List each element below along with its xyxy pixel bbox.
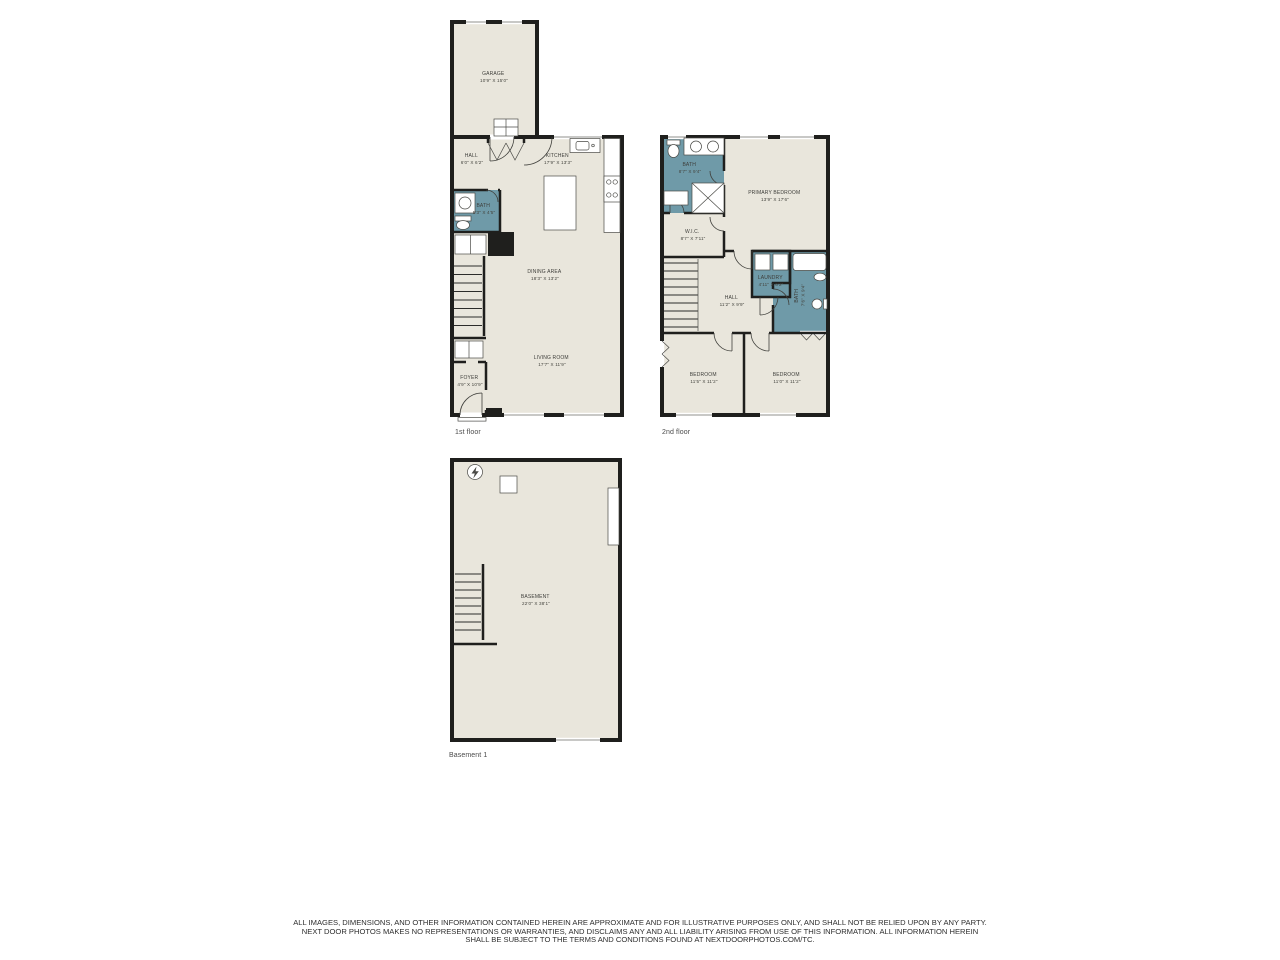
- disclaimer-line: SHALL BE SUBJECT TO THE TERMS AND CONDIT…: [0, 936, 1280, 945]
- second-floor-label: 2nd floor: [662, 429, 690, 436]
- electrical-panel-icon: [468, 465, 483, 480]
- egress-window: [608, 488, 619, 545]
- double-vanity-icon: [684, 138, 724, 155]
- room-basement: [452, 460, 620, 740]
- first-floor-label: 1st floor: [455, 429, 481, 436]
- second-floor-plan: BATH 8'7" X 9'4" PRIMARY BEDROOM 13'9" X…: [656, 131, 834, 423]
- stove-icon: [604, 176, 620, 202]
- bath2-sink-icon: [814, 273, 826, 281]
- kitchen-island: [544, 176, 576, 230]
- bathtub-icon: [793, 254, 826, 271]
- shower-icon: [692, 183, 724, 213]
- support-post: [500, 476, 517, 493]
- first-floor-plan: GARAGE 10'9" X 15'0" HALL 6'0" X 6'2" KI…: [446, 16, 630, 422]
- toilet-icon-bath2: [812, 299, 827, 309]
- disclaimer: ALL IMAGES, DIMENSIONS, AND OTHER INFORM…: [0, 919, 1280, 945]
- basement-plan: BASEMENT 22'0" X 38'1": [446, 454, 630, 750]
- linen-cabinet: [664, 191, 688, 205]
- garage-cabinet: [494, 119, 518, 136]
- basement-floor-label: Basement 1: [449, 752, 487, 759]
- kitchen-sink-icon: [570, 139, 600, 153]
- toilet-icon-2f: [667, 140, 680, 158]
- toilet-icon: [455, 216, 471, 230]
